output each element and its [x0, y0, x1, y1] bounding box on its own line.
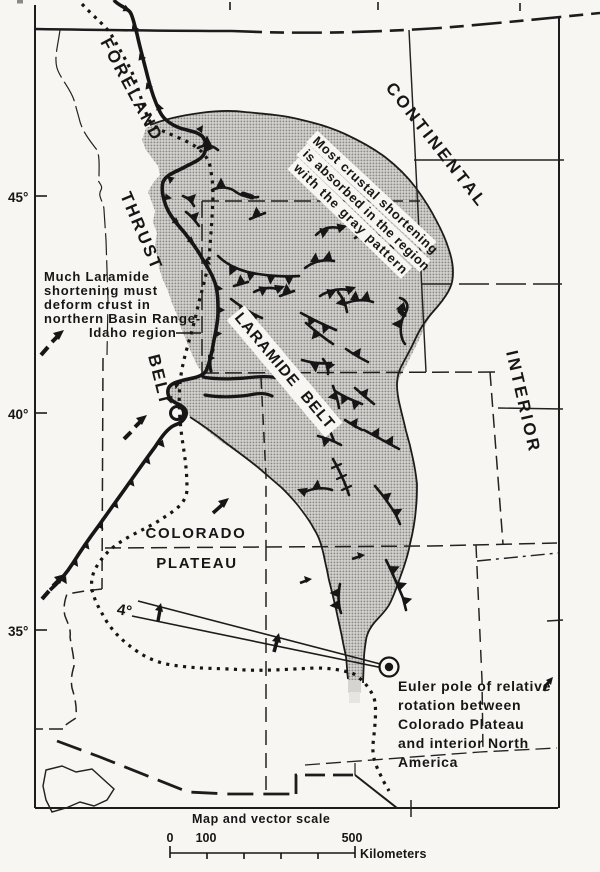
svg-text:35°: 35° — [8, 624, 28, 639]
svg-text:America: America — [398, 754, 458, 770]
svg-text:shortening must: shortening must — [44, 283, 158, 298]
svg-text:100: 100 — [196, 831, 217, 845]
svg-text:and interior North: and interior North — [398, 735, 529, 751]
svg-text:Idaho region: Idaho region — [89, 325, 177, 340]
svg-text:deform crust in: deform crust in — [44, 297, 151, 312]
svg-text:Much Laramide: Much Laramide — [44, 269, 150, 284]
svg-text:500: 500 — [342, 831, 363, 845]
svg-text:40°: 40° — [8, 407, 28, 422]
svg-text:Kilometers: Kilometers — [360, 847, 427, 861]
svg-text:PLATEAU: PLATEAU — [156, 555, 238, 572]
svg-text:45°: 45° — [8, 190, 28, 205]
svg-text:COLORADO: COLORADO — [145, 525, 246, 542]
svg-text:Map and vector scale: Map and vector scale — [192, 812, 330, 826]
svg-text:Euler pole of relative: Euler pole of relative — [398, 678, 551, 694]
svg-text:Colorado Plateau: Colorado Plateau — [398, 716, 524, 732]
svg-text:rotation between: rotation between — [398, 697, 521, 713]
svg-text:4°: 4° — [116, 601, 134, 620]
svg-text:northern Basin Range-: northern Basin Range- — [44, 311, 201, 326]
svg-text:0: 0 — [167, 831, 174, 845]
